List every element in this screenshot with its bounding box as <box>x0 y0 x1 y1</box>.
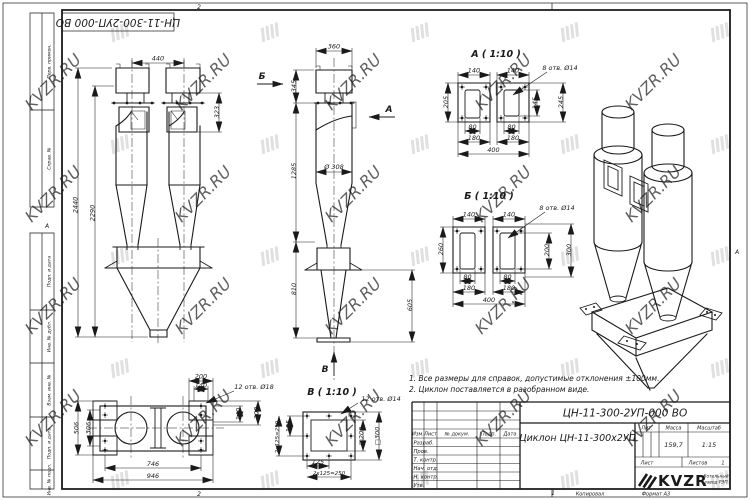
dim-a-140l: 140 <box>468 67 480 75</box>
zone-mark-top: 2 <box>197 4 201 11</box>
dim-2440: 2440 <box>72 197 80 214</box>
section-v-title: В ( 1:10 ) <box>307 387 356 398</box>
dim-b-180r: 180 <box>503 284 515 292</box>
margin-label-perv: Перв. примен. <box>47 44 53 79</box>
section-v-holes-label: 12 отв. Ø14 <box>361 395 400 403</box>
dim-b-200: 200 <box>543 244 551 256</box>
tb-col-list: Лист <box>423 432 438 438</box>
section-b-title: Б ( 1:10 ) <box>464 191 513 202</box>
margin-label-podp2: Подп. и дата <box>47 428 53 459</box>
tb-col-izm: Изм. <box>412 432 424 438</box>
tb-lit-label: Лит. <box>640 426 653 432</box>
section-b-holes-label: 8 отв. Ø14 <box>539 204 574 212</box>
dim-v-125l: 125 <box>285 420 293 432</box>
drawing-canvas: KVZR.RU Перв. примен. Справ. № Подп. и д… <box>0 0 750 500</box>
dim-top-306: 306 <box>85 422 93 434</box>
view-arrow-v-label: В <box>322 365 329 375</box>
dim-440: 440 <box>152 55 164 63</box>
dim-810: 810 <box>290 283 298 295</box>
zone-mark-right: А <box>734 249 739 256</box>
dim-v-250b: 2х125=250 <box>313 471 346 477</box>
dim-v-250l: 2х125=250 <box>275 420 281 453</box>
tb-mass-label: Масса <box>666 426 682 432</box>
company-logo-text: KVZR <box>658 472 708 490</box>
tb-col-data: Дата <box>503 432 517 438</box>
dim-b-80l: 80 <box>463 273 471 281</box>
view-arrow-b-label: Б <box>259 72 266 82</box>
dim-345: 345 <box>290 80 298 92</box>
dim-b-260: 260 <box>437 243 445 255</box>
dim-605: 605 <box>406 299 414 311</box>
dim-a-145: 145 <box>531 97 539 109</box>
margin-label-inv-dubl: Инв. № дубл. <box>47 321 53 352</box>
dim-a-205: 205 <box>442 96 450 108</box>
dim-top-746: 746 <box>147 460 159 468</box>
tb-scale-value: 1:15 <box>702 441 717 449</box>
tb-row-nachotd: Нач. отд. <box>414 466 439 472</box>
tb-scale-label: Масштаб <box>697 426 721 432</box>
tb-sheet-label: Лист <box>640 461 655 467</box>
dim-a-180l: 180 <box>468 134 480 142</box>
dim-top-140r: 140 <box>235 408 243 420</box>
dim-v-sq200: □200 <box>358 427 366 446</box>
tb-sheets-label: Листов <box>688 461 708 467</box>
dim-b-400: 400 <box>483 296 495 304</box>
note-1: 1. Все размеры для справок, допустимые о… <box>409 374 659 383</box>
tb-doc-number: ЦН-11-300-2УП-000 ВО <box>563 408 687 420</box>
dim-360: 360 <box>328 43 340 51</box>
dim-b-180l: 180 <box>463 284 475 292</box>
dim-a-80l: 80 <box>468 123 476 131</box>
dim-top-506: 506 <box>73 422 81 434</box>
dim-top-200t: 200 <box>195 373 207 381</box>
dim-323: 323 <box>213 106 221 118</box>
section-a-title: А ( 1:10 ) <box>470 49 521 60</box>
dim-b-140r: 140 <box>503 211 515 219</box>
dim-b-140l: 140 <box>463 211 475 219</box>
dim-a-180r: 180 <box>507 134 519 142</box>
margin-label-sprav: Справ. № <box>47 147 53 170</box>
section-a-holes-label: 8 отв. Ø14 <box>542 64 577 72</box>
stamp-doc-number: ЦН-11-300-2УП-000 ВО <box>56 16 180 28</box>
note-2: 2. Циклон поставляется в разобранном вид… <box>409 385 589 394</box>
dim-v-sq300: □300 <box>374 427 382 446</box>
tb-sheets-value: 1 <box>721 461 724 467</box>
margin-label-vzam: Взам. инв. № <box>47 374 53 405</box>
dim-a-80r: 80 <box>507 123 515 131</box>
dim-v-125b: 125 <box>312 458 324 466</box>
footer-format-label: Формат А3 <box>642 492 670 498</box>
margin-label-inv-podl: Инв. № подл. <box>47 464 53 496</box>
dim-a-140r: 140 <box>507 67 519 75</box>
dim-2290: 2290 <box>89 205 97 222</box>
tb-row-razrab: Разраб. <box>414 441 434 447</box>
watermark-layer <box>0 0 750 500</box>
tb-row-nkontr: Н. контр. <box>414 475 439 481</box>
company-name-line2: завод РЭП <box>704 480 728 486</box>
zone-mark-bottom: 2 <box>197 491 201 498</box>
dim-top-946: 946 <box>147 472 159 480</box>
company-name-line1: Котельный <box>703 474 728 480</box>
view-arrow-a-label: А <box>385 105 393 115</box>
footer-copied-label: Копировал <box>576 492 605 498</box>
tb-product-name: Циклон ЦН-11-300х2УП <box>519 433 636 444</box>
dim-a-245: 245 <box>557 96 565 108</box>
drawing-sheet: KVZR.RU Перв. примен. Справ. № Подп. и д… <box>0 0 750 500</box>
top-holes-label: 12 отв. Ø18 <box>234 383 273 391</box>
dim-1285: 1285 <box>290 163 298 180</box>
tb-col-doc: № докум. <box>444 432 470 438</box>
dim-a-400: 400 <box>487 146 499 154</box>
tb-col-podp: Подп. <box>481 432 496 438</box>
dim-d308: Ø 308 <box>323 163 344 171</box>
dim-top-200r: 200 <box>253 407 261 419</box>
tb-mass-value: 159,7 <box>664 441 683 449</box>
tb-row-utv: Утв. <box>414 483 425 489</box>
zone-mark-left: А <box>44 223 49 230</box>
dim-b-300: 300 <box>565 244 573 256</box>
tb-row-tkontr: Т. контр. <box>414 458 438 464</box>
margin-label-podp1: Подп. и дата <box>47 256 53 287</box>
tb-row-prov: Пров. <box>414 449 429 455</box>
dim-top-140t: 140 <box>195 382 207 390</box>
dim-b-80r: 80 <box>503 273 511 281</box>
